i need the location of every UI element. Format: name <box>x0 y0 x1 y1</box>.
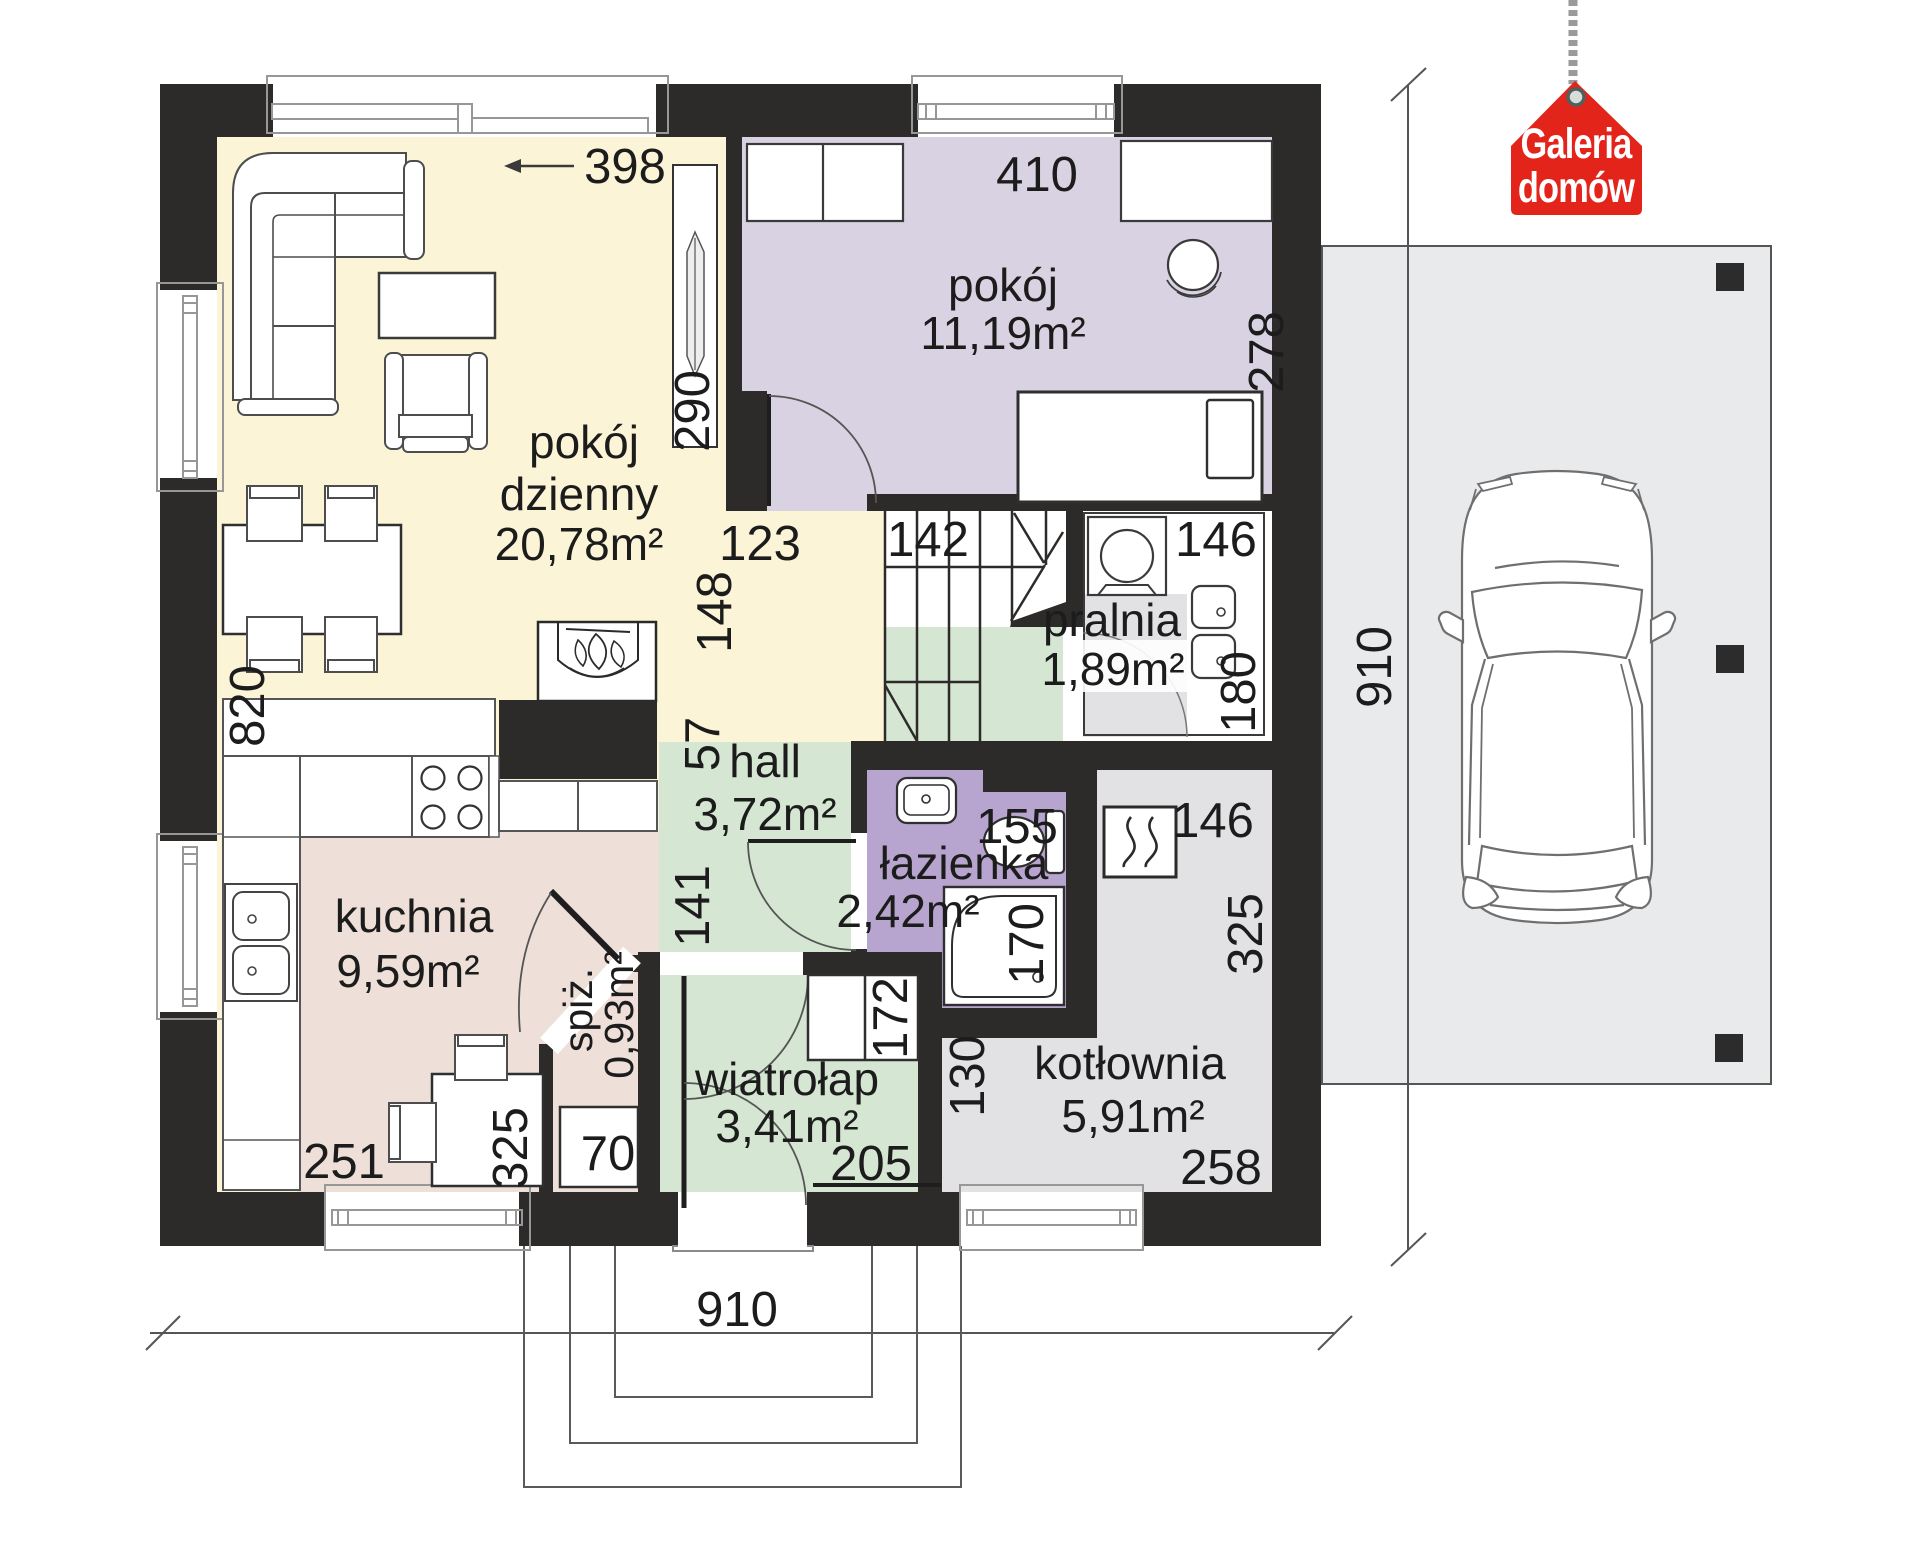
svg-text:pralnia: pralnia <box>1043 594 1182 646</box>
svg-text:kuchnia: kuchnia <box>335 890 494 942</box>
svg-text:0,93m²: 0,93m² <box>596 951 642 1079</box>
svg-text:251: 251 <box>303 1135 385 1189</box>
svg-text:20,78m²: 20,78m² <box>495 518 664 570</box>
svg-text:11,19m²: 11,19m² <box>920 307 1085 359</box>
svg-text:258: 258 <box>1180 1141 1262 1195</box>
svg-text:205: 205 <box>830 1137 912 1191</box>
svg-text:57: 57 <box>676 717 730 772</box>
svg-text:1,89m²: 1,89m² <box>1041 643 1184 695</box>
svg-text:325: 325 <box>1219 893 1273 975</box>
svg-text:kotłownia: kotłownia <box>1034 1037 1226 1089</box>
svg-text:spiż.: spiż. <box>555 968 601 1052</box>
svg-text:910: 910 <box>696 1283 778 1337</box>
svg-text:820: 820 <box>221 665 275 747</box>
svg-text:5,91m²: 5,91m² <box>1061 1090 1204 1142</box>
svg-text:910: 910 <box>1348 626 1402 708</box>
svg-text:398: 398 <box>584 140 666 194</box>
svg-text:70: 70 <box>581 1127 636 1181</box>
svg-text:pokój: pokój <box>529 416 639 468</box>
svg-text:Galeria: Galeria <box>1520 120 1632 167</box>
svg-text:pokój: pokój <box>948 259 1058 311</box>
svg-text:410: 410 <box>996 148 1078 202</box>
svg-text:dzienny: dzienny <box>500 468 659 520</box>
svg-text:123: 123 <box>719 517 801 571</box>
svg-text:146: 146 <box>1175 513 1257 567</box>
svg-text:9,59m²: 9,59m² <box>336 945 479 997</box>
svg-text:domów: domów <box>1518 164 1636 211</box>
svg-text:325: 325 <box>484 1107 538 1189</box>
svg-text:130: 130 <box>941 1035 995 1117</box>
svg-text:hall: hall <box>729 735 801 787</box>
svg-text:146: 146 <box>1172 794 1254 848</box>
svg-text:172: 172 <box>864 977 918 1059</box>
svg-text:278: 278 <box>1240 311 1294 393</box>
svg-text:155: 155 <box>976 800 1058 854</box>
svg-text:2,42m²: 2,42m² <box>836 885 979 937</box>
svg-text:148: 148 <box>688 571 742 653</box>
svg-text:wiatrołap: wiatrołap <box>694 1053 879 1105</box>
svg-text:3,72m²: 3,72m² <box>693 788 836 840</box>
svg-text:142: 142 <box>887 513 969 567</box>
svg-text:290: 290 <box>666 370 720 452</box>
svg-text:141: 141 <box>666 865 720 947</box>
svg-text:180: 180 <box>1212 651 1266 733</box>
svg-text:170: 170 <box>1000 903 1054 985</box>
